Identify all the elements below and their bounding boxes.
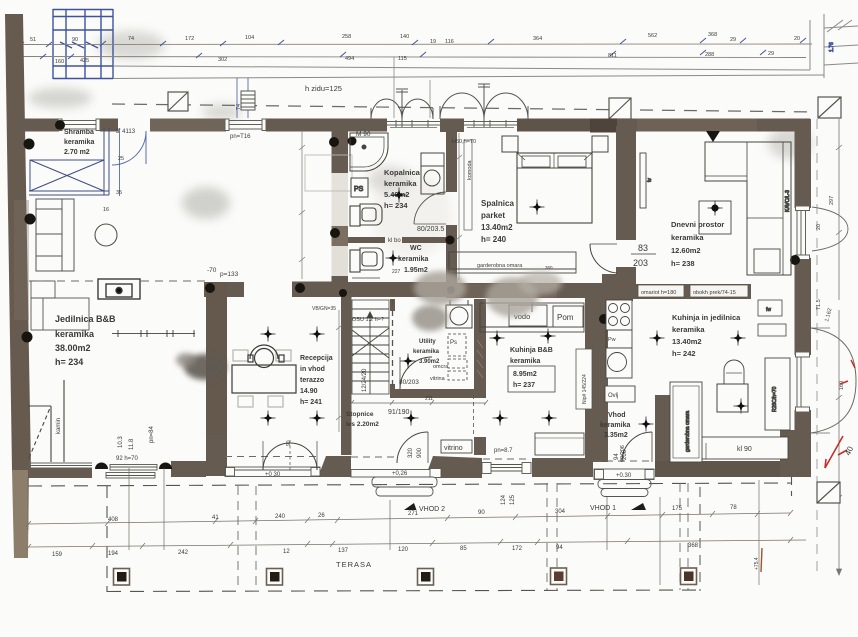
svg-text:omariot h=180: omariot h=180 [641, 290, 676, 296]
svg-text:tv: tv [647, 178, 653, 182]
svg-text:Ps: Ps [450, 340, 457, 346]
svg-text:WC: WC [410, 245, 422, 252]
svg-text:2.70 m2: 2.70 m2 [64, 149, 90, 156]
svg-text:19: 19 [430, 39, 436, 45]
svg-text:R26C/h=70: R26C/h=70 [772, 386, 778, 412]
svg-text:104: 104 [245, 35, 254, 41]
svg-text:304: 304 [555, 509, 566, 515]
svg-text:VHOD 1: VHOD 1 [590, 505, 616, 512]
svg-text:20: 20 [794, 36, 800, 42]
svg-text:288: 288 [705, 52, 714, 58]
svg-text:11.8: 11.8 [129, 438, 135, 450]
svg-text:h zidu=125: h zidu=125 [305, 84, 342, 93]
svg-text:Kopalnica: Kopalnica [384, 168, 421, 177]
svg-text:90: 90 [72, 37, 78, 43]
svg-text:35: 35 [116, 190, 122, 196]
svg-text:TERASA: TERASA [336, 560, 372, 569]
svg-text:Spalnica: Spalnica [481, 199, 514, 208]
svg-text:h= 242: h= 242 [672, 349, 696, 358]
svg-text:VB/GN=35: VB/GN=35 [312, 306, 336, 312]
svg-text:VHOD 2: VHOD 2 [419, 506, 445, 513]
svg-text:12/24/20: 12/24/20 [362, 368, 368, 392]
svg-text:115: 115 [398, 56, 407, 62]
svg-text:vitrino: vitrino [444, 445, 463, 452]
svg-text:271: 271 [408, 511, 419, 517]
svg-text:94: 94 [556, 545, 563, 551]
svg-text:38.00m2: 38.00m2 [55, 343, 91, 353]
svg-text:25: 25 [118, 156, 124, 162]
svg-text:h= 237: h= 237 [513, 382, 535, 389]
svg-text:h= 238: h= 238 [671, 259, 695, 268]
svg-text:h= 234: h= 234 [55, 357, 83, 367]
svg-text:omcra: omcra [433, 364, 449, 370]
svg-text:320: 320 [408, 447, 414, 458]
svg-text:160: 160 [55, 59, 64, 65]
svg-text:172: 172 [512, 546, 523, 552]
svg-text:10.3: 10.3 [118, 436, 124, 448]
svg-text:3.35m2: 3.35m2 [604, 432, 628, 439]
svg-text:-70: -70 [207, 267, 217, 274]
svg-text:terazzo: terazzo [300, 377, 324, 384]
svg-text:kamin: kamin [56, 418, 62, 434]
svg-text:Stopnice: Stopnice [346, 411, 374, 418]
svg-text:pn=T16: pn=T16 [230, 134, 251, 140]
svg-text:360: 360 [545, 265, 553, 270]
svg-text:Kuhinja in jedilnica: Kuhinja in jedilnica [672, 313, 741, 322]
svg-text:KAVC/L-3: KAVC/L-3 [785, 190, 791, 212]
svg-text:206: 206 [622, 449, 628, 460]
svg-text:fw: fw [766, 307, 771, 313]
svg-text:408: 408 [108, 517, 119, 523]
svg-text:+0,26: +0,26 [392, 471, 408, 477]
svg-text:364: 364 [533, 36, 542, 42]
svg-text:203: 203 [633, 258, 648, 268]
svg-text:vitrina: vitrina [430, 376, 446, 382]
svg-text:297: 297 [829, 196, 835, 205]
svg-text:14.90: 14.90 [300, 388, 318, 395]
svg-text:92 h=70: 92 h=70 [116, 456, 139, 462]
svg-text:124: 124 [501, 494, 507, 505]
svg-text:85: 85 [460, 546, 467, 552]
svg-text:Jedilnica B&B: Jedilnica B&B [55, 314, 116, 324]
svg-text:h= 234: h= 234 [384, 201, 408, 210]
svg-text:26: 26 [318, 513, 325, 519]
svg-text:368: 368 [708, 32, 717, 38]
svg-text:keramika: keramika [510, 358, 540, 365]
svg-text:194: 194 [108, 551, 119, 557]
svg-text:94: 94 [614, 453, 620, 460]
svg-text:obokh prek/74-15: obokh prek/74-15 [693, 290, 736, 296]
svg-text:258: 258 [342, 34, 351, 40]
svg-text:12.60m2: 12.60m2 [671, 246, 701, 255]
svg-text:p=133: p=133 [220, 271, 239, 278]
svg-text:keramika: keramika [64, 139, 94, 146]
svg-text:29: 29 [730, 37, 736, 43]
svg-text:41: 41 [212, 515, 219, 521]
svg-text:16: 16 [103, 207, 109, 213]
svg-text:Dnevni prostor: Dnevni prostor [671, 220, 724, 229]
svg-text:51: 51 [30, 37, 36, 43]
svg-text:80/203: 80/203 [399, 379, 419, 386]
svg-text:172: 172 [185, 36, 194, 42]
svg-text:12: 12 [283, 549, 290, 555]
svg-text:13.40m2: 13.40m2 [672, 337, 702, 346]
svg-text:242: 242 [178, 550, 189, 556]
svg-text:137: 137 [338, 548, 349, 554]
svg-text:keramika: keramika [55, 329, 95, 339]
svg-text:PS: PS [354, 186, 364, 193]
svg-text:90: 90 [478, 510, 485, 516]
svg-text:h= 240: h= 240 [481, 235, 507, 244]
svg-text:13.40m2: 13.40m2 [481, 223, 513, 232]
svg-text:80/203.5: 80/203.5 [417, 226, 444, 233]
svg-text:116: 116 [445, 39, 454, 45]
svg-text:Ovlj: Ovlj [608, 393, 618, 399]
svg-text:H50,h=70: H50,h=70 [452, 139, 476, 145]
svg-text:Nip# 145/224: Nip# 145/224 [582, 374, 588, 404]
svg-text:kl bo: kl bo [388, 238, 401, 244]
svg-text:175: 175 [672, 506, 683, 512]
svg-text:M 90: M 90 [356, 131, 371, 138]
svg-text:keramika: keramika [384, 179, 417, 188]
svg-text:1.95m2: 1.95m2 [404, 267, 428, 274]
svg-text:Vhod: Vhod [608, 412, 626, 419]
svg-text:Recepcija: Recepcija [300, 355, 333, 362]
svg-text:125: 125 [510, 494, 516, 505]
svg-text:keramika: keramika [413, 349, 440, 355]
svg-text:komoda: komoda [467, 159, 473, 180]
svg-text:425: 425 [80, 58, 89, 64]
svg-text:91/190: 91/190 [388, 409, 410, 416]
svg-text:keramika: keramika [672, 325, 705, 334]
svg-text:garderobna omara: garderobna omara [477, 263, 523, 269]
svg-text:368: 368 [688, 543, 699, 549]
svg-text:1.76: 1.76 [829, 42, 835, 52]
svg-text:211: 211 [425, 396, 433, 402]
svg-text:Utility: Utility [419, 339, 436, 345]
svg-text:8.95m2: 8.95m2 [513, 371, 537, 378]
svg-text:900: 900 [417, 447, 423, 458]
svg-text:keramika: keramika [600, 422, 630, 429]
svg-text:les 2.20m2: les 2.20m2 [346, 421, 379, 428]
svg-text:78: 78 [730, 505, 737, 511]
svg-text:+75.4: +75.4 [754, 557, 760, 570]
svg-text:811: 811 [608, 53, 617, 59]
svg-text:302: 302 [218, 57, 227, 63]
svg-text:240: 240 [275, 514, 286, 520]
svg-text:h= 241: h= 241 [300, 399, 322, 406]
svg-text:562: 562 [648, 33, 657, 39]
svg-text:140: 140 [400, 34, 409, 40]
svg-text:Pom: Pom [557, 313, 574, 322]
svg-text:29: 29 [768, 51, 774, 57]
svg-text:3' 4113: 3' 4113 [116, 129, 136, 135]
svg-text:Kuhinja B&B: Kuhinja B&B [510, 347, 553, 354]
svg-text:pn=84: pn=84 [149, 425, 155, 443]
svg-text:120: 120 [398, 547, 409, 553]
svg-text:74: 74 [128, 36, 134, 42]
svg-text:+0.30: +0.30 [616, 473, 632, 479]
svg-text:159: 159 [52, 552, 63, 558]
svg-text:227: 227 [392, 269, 401, 275]
svg-text:kl 90: kl 90 [737, 446, 752, 453]
svg-text:494: 494 [345, 56, 354, 62]
svg-text:keramika: keramika [398, 256, 428, 263]
svg-text:keramika: keramika [671, 233, 704, 242]
svg-text:Shramba: Shramba [64, 129, 94, 136]
svg-text:parket: parket [481, 211, 505, 220]
svg-text:OSU 1.2 h=?: OSU 1.2 h=? [352, 317, 384, 323]
svg-text:83: 83 [638, 243, 648, 253]
svg-text:in vhod: in vhod [300, 366, 325, 373]
svg-text:+0 30: +0 30 [265, 472, 281, 478]
svg-text:garderobna omara: garderobna omara [685, 411, 691, 452]
svg-text:90: 90 [286, 440, 292, 446]
svg-text:pn=8.7: pn=8.7 [494, 448, 513, 454]
svg-text:Pw: Pw [608, 337, 616, 343]
